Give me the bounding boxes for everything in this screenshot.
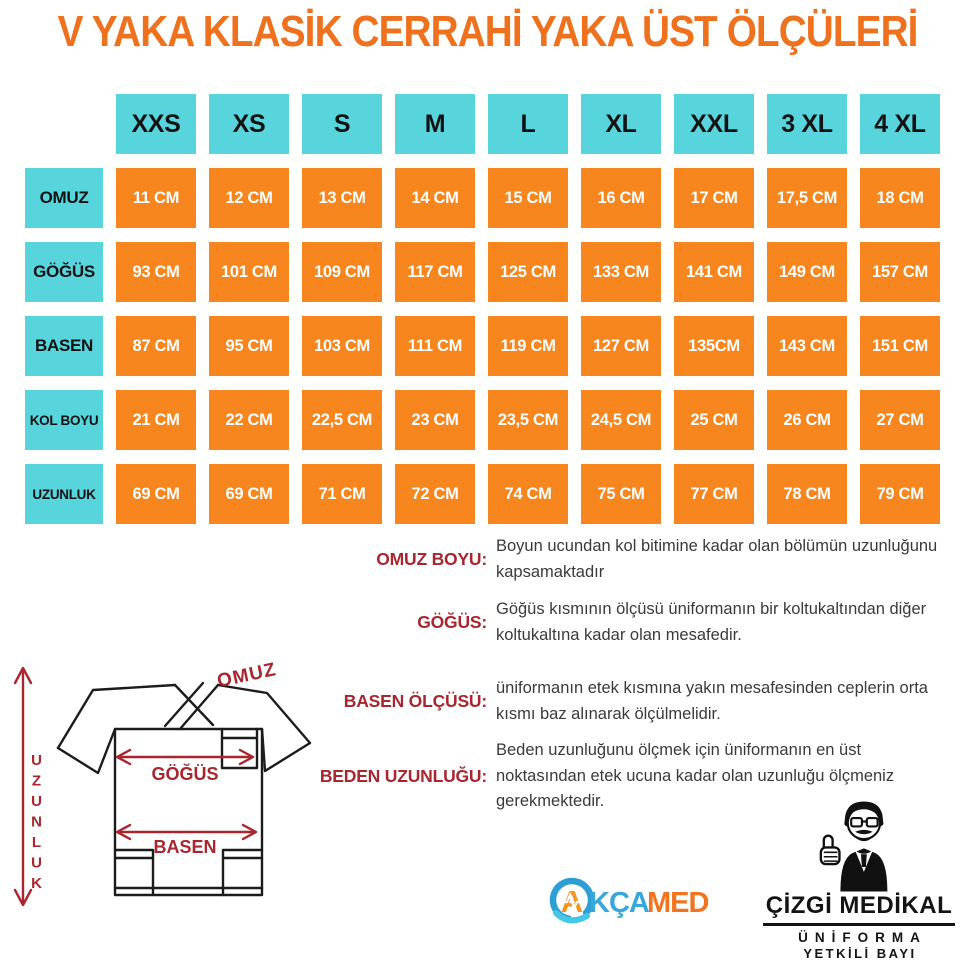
size-row-label-kol-boyu: KOL BOYU [25, 390, 103, 450]
size-row-label-basen: BASEN [25, 316, 103, 376]
size-cell-basen-xl: 127 CM [581, 316, 661, 376]
size-cell-omuz-xs: 12 CM [209, 168, 289, 228]
cizgi-yetkili-bayi-text: YETKİLİ BAYI [763, 946, 955, 960]
table-corner [25, 94, 103, 154]
page-title: V YAKA KLASİK CERRAHİ YAKA ÜST ÖLÇÜLERİ [58, 6, 903, 58]
size-cell-gogus-m: 117 CM [395, 242, 475, 302]
cizgi-medikal-logo: ÇİZGİ MEDİKAL ÜNİFORMA YETKİLİ BAYI [763, 798, 955, 960]
size-cell-kol-boyu-xxl: 25 CM [674, 390, 754, 450]
size-row-label-uzunluk: UZUNLUK [25, 464, 103, 524]
scrub-top-measurement-diagram: OMUZ GÖĞÜS BASEN [8, 648, 320, 948]
size-column-header-xl: XL [581, 94, 661, 154]
size-cell-omuz-3-xl: 17,5 CM [767, 168, 847, 228]
size-cell-omuz-l: 15 CM [488, 168, 568, 228]
size-cell-gogus-xxs: 93 CM [116, 242, 196, 302]
size-column-header-4-xl: 4 XL [860, 94, 940, 154]
gogus-diagram-label: GÖĞÜS [151, 763, 218, 784]
size-cell-kol-boyu-xl: 24,5 CM [581, 390, 661, 450]
definition-gogus: GÖĞÜS: Göğüs kısmının ölçüsü üniformanın… [297, 597, 951, 648]
gogus-arrow [117, 750, 253, 764]
size-cell-gogus-s: 109 CM [302, 242, 382, 302]
size-column-header-xs: XS [209, 94, 289, 154]
akcamed-text-kca: KÇA [589, 887, 650, 919]
size-cell-omuz-4-xl: 18 CM [860, 168, 940, 228]
definition-term: GÖĞÜS: [297, 612, 496, 633]
basen-diagram-label: BASEN [153, 837, 216, 857]
cizgi-medikal-text: ÇİZGİ MEDİKAL [763, 892, 955, 926]
size-cell-basen-3-xl: 143 CM [767, 316, 847, 376]
size-cell-gogus-xl: 133 CM [581, 242, 661, 302]
size-column-header-s: S [302, 94, 382, 154]
size-column-header-m: M [395, 94, 475, 154]
size-cell-basen-l: 119 CM [488, 316, 568, 376]
size-cell-uzunluk-xxl: 77 CM [674, 464, 754, 524]
size-cell-uzunluk-xs: 69 CM [209, 464, 289, 524]
size-cell-gogus-3-xl: 149 CM [767, 242, 847, 302]
size-cell-kol-boyu-xs: 22 CM [209, 390, 289, 450]
size-chart-poster: V YAKA KLASİK CERRAHİ YAKA ÜST ÖLÇÜLERİ … [0, 0, 960, 960]
size-cell-gogus-xxl: 141 CM [674, 242, 754, 302]
size-cell-uzunluk-xxs: 69 CM [116, 464, 196, 524]
scrub-top-outline [58, 683, 310, 895]
size-cell-basen-m: 111 CM [395, 316, 475, 376]
definition-omuz-boyu: OMUZ BOYU: Boyun ucundan kol bitimine ka… [297, 534, 951, 585]
size-cell-gogus-4-xl: 157 CM [860, 242, 940, 302]
size-column-header-3-xl: 3 XL [767, 94, 847, 154]
size-cell-omuz-xl: 16 CM [581, 168, 661, 228]
thumbs-up-man-illustration [815, 798, 903, 892]
size-cell-kol-boyu-3-xl: 26 CM [767, 390, 847, 450]
omuz-diagram-label: OMUZ [215, 659, 278, 692]
size-cell-basen-4-xl: 151 CM [860, 316, 940, 376]
size-cell-uzunluk-l: 74 CM [488, 464, 568, 524]
size-cell-kol-boyu-m: 23 CM [395, 390, 475, 450]
size-cell-uzunluk-m: 72 CM [395, 464, 475, 524]
akcamed-logo: A KÇA MED [548, 872, 748, 928]
size-cell-uzunluk-s: 71 CM [302, 464, 382, 524]
uzunluk-diagram-label: UZUNLUK [28, 752, 45, 896]
size-column-header-xxs: XXS [116, 94, 196, 154]
size-cell-uzunluk-3-xl: 78 CM [767, 464, 847, 524]
size-cell-kol-boyu-l: 23,5 CM [488, 390, 568, 450]
definition-term: BASEN ÖLÇÜSÜ: [297, 691, 496, 712]
akcamed-text-med: MED [647, 887, 709, 919]
definition-term: OMUZ BOYU: [297, 549, 496, 570]
size-cell-basen-s: 103 CM [302, 316, 382, 376]
size-cell-gogus-xs: 101 CM [209, 242, 289, 302]
size-cell-omuz-xxs: 11 CM [116, 168, 196, 228]
size-cell-gogus-l: 125 CM [488, 242, 568, 302]
size-cell-basen-xxl: 135CM [674, 316, 754, 376]
size-cell-uzunluk-4-xl: 79 CM [860, 464, 940, 524]
size-row-label-omuz: OMUZ [25, 168, 103, 228]
size-cell-basen-xs: 95 CM [209, 316, 289, 376]
size-cell-kol-boyu-4-xl: 27 CM [860, 390, 940, 450]
size-table: XXSXSSMLXLXXL3 XL4 XLOMUZ11 CM12 CM13 CM… [25, 94, 940, 524]
definition-term: BEDEN UZUNLUĞU: [297, 766, 496, 787]
definition-description: Boyun ucundan kol bitimine kadar olan bö… [496, 534, 951, 585]
size-column-header-l: L [488, 94, 568, 154]
size-cell-kol-boyu-xxs: 21 CM [116, 390, 196, 450]
definition-description: üniformanın etek kısmına yakın mesafesin… [496, 676, 951, 727]
size-cell-omuz-xxl: 17 CM [674, 168, 754, 228]
size-cell-omuz-s: 13 CM [302, 168, 382, 228]
size-cell-kol-boyu-s: 22,5 CM [302, 390, 382, 450]
size-column-header-xxl: XXL [674, 94, 754, 154]
definition-basen-olcusu: BASEN ÖLÇÜSÜ: üniformanın etek kısmına y… [297, 676, 951, 727]
size-cell-basen-xxs: 87 CM [116, 316, 196, 376]
size-row-label-gogus: GÖĞÜS [25, 242, 103, 302]
definition-description: Göğüs kısmının ölçüsü üniformanın bir ko… [496, 597, 951, 648]
size-cell-omuz-m: 14 CM [395, 168, 475, 228]
cizgi-uniforma-text: ÜNİFORMA [763, 930, 955, 945]
size-cell-uzunluk-xl: 75 CM [581, 464, 661, 524]
